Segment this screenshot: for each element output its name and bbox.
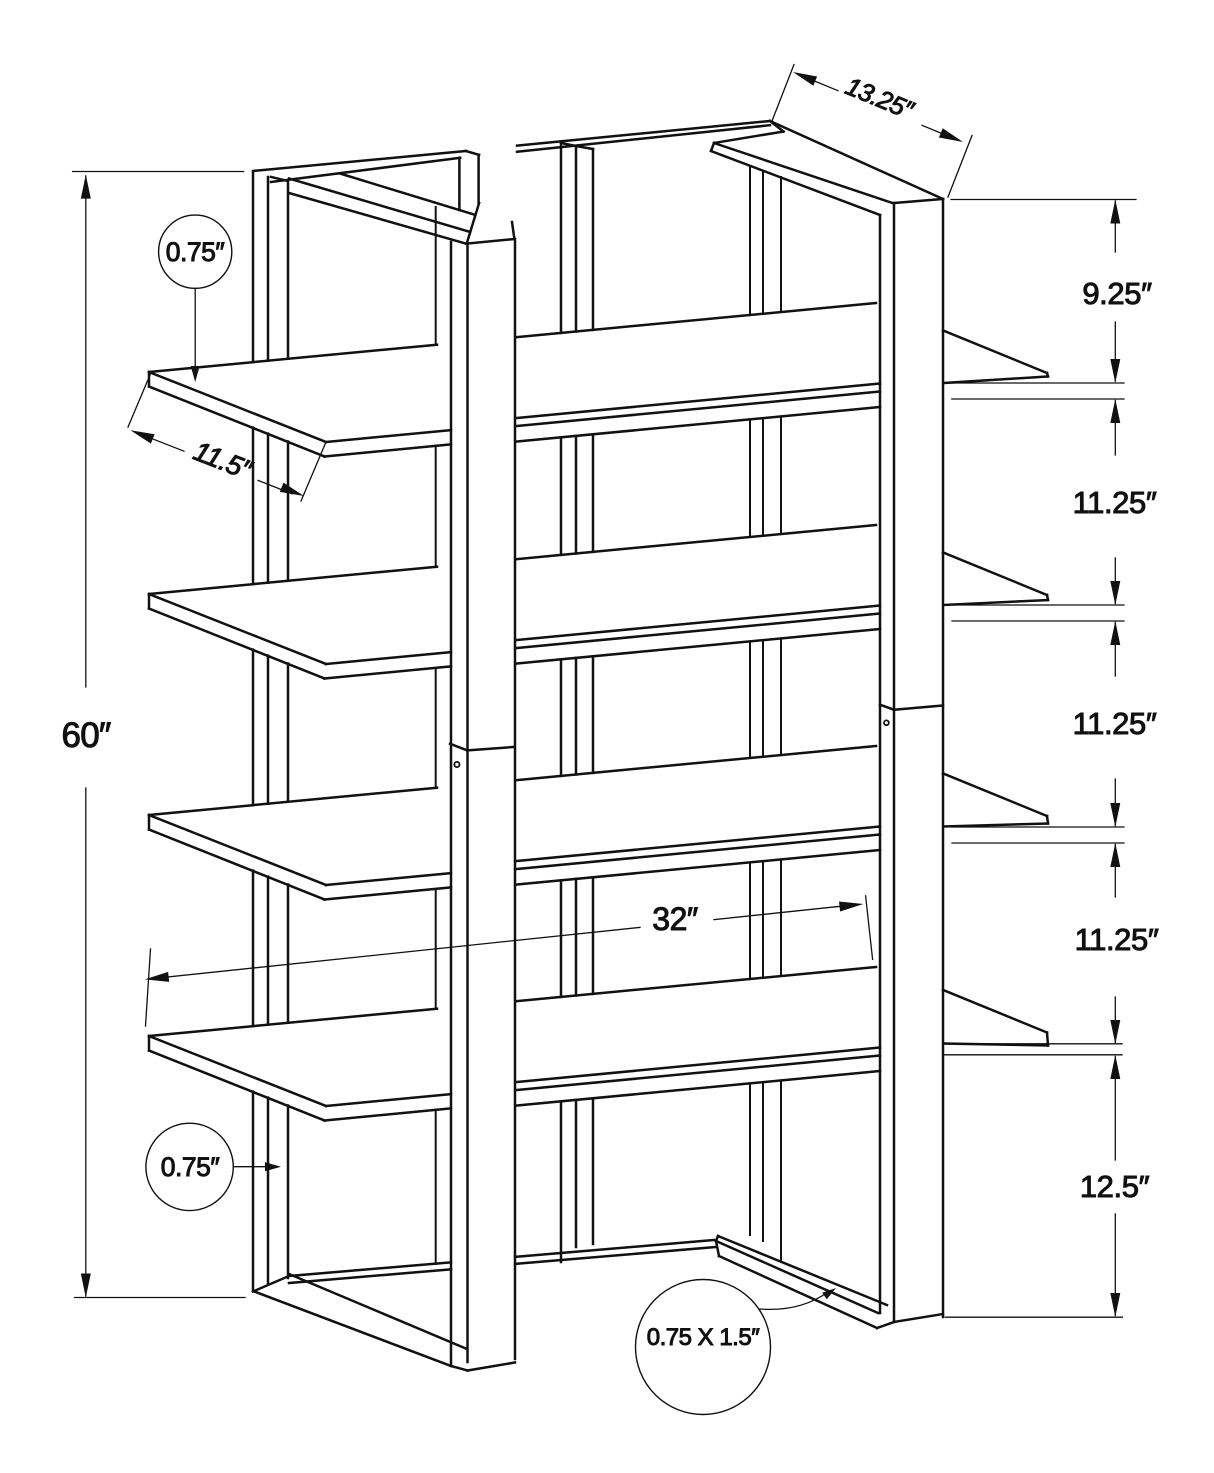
svg-text:60″: 60″	[62, 716, 111, 755]
svg-text:32″: 32″	[652, 901, 698, 937]
svg-text:11.25″: 11.25″	[1075, 922, 1159, 957]
svg-text:0.75″: 0.75″	[166, 237, 225, 267]
svg-text:11.25″: 11.25″	[1073, 485, 1157, 520]
svg-text:11.5″: 11.5″	[189, 435, 257, 486]
svg-text:13.25″: 13.25″	[841, 72, 918, 125]
svg-text:11.25″: 11.25″	[1073, 706, 1157, 741]
svg-text:9.25″: 9.25″	[1082, 276, 1152, 311]
svg-text:12.5″: 12.5″	[1080, 1169, 1150, 1204]
svg-text:0.75″: 0.75″	[161, 1152, 220, 1182]
svg-text:0.75 X 1.5″: 0.75 X 1.5″	[647, 1324, 760, 1351]
